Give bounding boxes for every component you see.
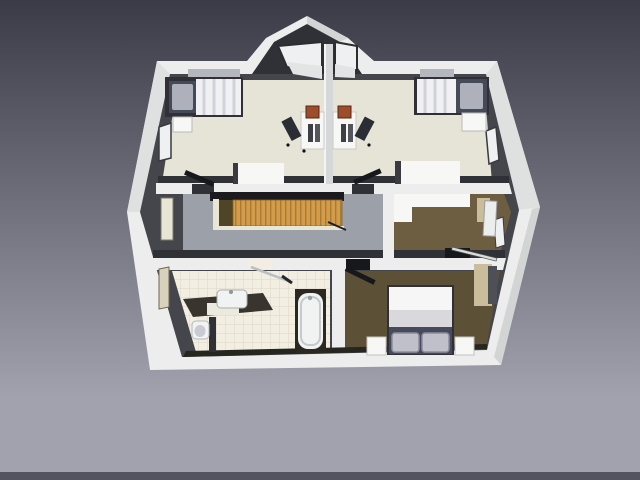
stair-stringer-left [213,199,219,228]
bed-sheet [389,287,452,310]
wall-bathroom-master [332,270,345,352]
window-right-slope-bedroom [486,127,499,164]
bathtub-faucet [308,296,312,300]
nightstand-right [455,337,474,355]
window-hallway-left [161,198,173,240]
window-behind-bed-left [188,69,240,78]
stair-treads [233,200,342,226]
closet-door-panel [483,201,497,237]
desk-keyboard [308,124,313,142]
window-bathroom-left [159,267,169,309]
desk-keyboard [341,124,346,142]
floor-plan-render [0,0,640,480]
chair-caster [286,143,289,146]
pillow-left [392,333,419,352]
desk-monitor [338,106,351,118]
nightstand [462,113,486,131]
sink-faucet [229,290,233,294]
bed-pillow [172,84,193,110]
dresser-side-shade [395,161,401,184]
nightstand [173,117,192,132]
toilet-seat [195,325,206,337]
stair-stringer-bottom [213,226,344,230]
wardrobe-dark-panel [488,266,497,304]
wall-band-hallway-bottomrooms [150,258,506,270]
dresser [395,161,460,184]
window-left-slope-bedroom [159,123,171,161]
partition-wall [209,317,216,352]
wall-hallway-closet [383,194,394,258]
doorway-bedroom-top-right [352,184,374,194]
desk-keyboard-2 [315,124,320,142]
stair-lower-flight [219,200,233,226]
chair-caster [367,143,370,146]
background-baseline-strip [0,472,640,480]
staircase [210,192,346,230]
dresser [233,163,284,184]
window-behind-bed-right [420,69,454,78]
bed-band [389,310,452,327]
pillow-right [422,333,449,352]
nightstand-left [367,337,386,355]
desk-dot [302,149,305,152]
bed-pillow [460,83,483,109]
desk-keyboard-2 [348,124,353,142]
desk-monitor [306,106,319,118]
dresser-side-shade [233,163,238,184]
